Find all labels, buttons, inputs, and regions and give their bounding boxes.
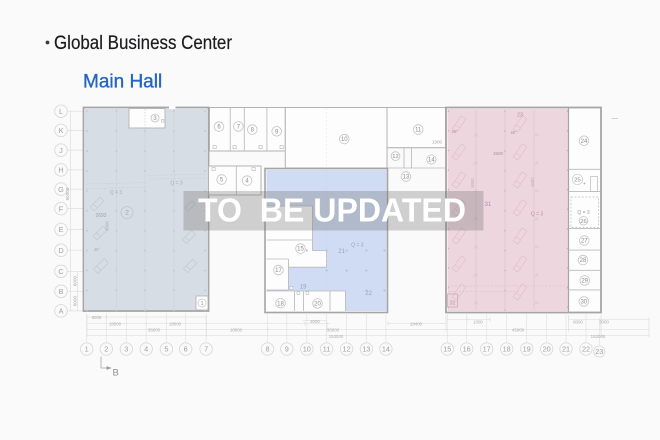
svg-text:L: L (59, 107, 63, 116)
svg-text:6000: 6000 (72, 295, 77, 306)
svg-text:12: 12 (392, 154, 398, 160)
svg-text:10: 10 (341, 137, 348, 143)
svg-text:9: 9 (285, 345, 289, 354)
svg-text:153000: 153000 (329, 334, 344, 339)
svg-text:Main Hall: Main Hall (83, 72, 162, 93)
svg-text:Q = 3: Q = 3 (577, 210, 590, 216)
svg-text:30: 30 (580, 300, 587, 306)
svg-text:1000: 1000 (473, 320, 483, 325)
svg-text:3000: 3000 (599, 320, 609, 325)
svg-text:19: 19 (523, 345, 531, 354)
svg-text:18400: 18400 (410, 322, 423, 327)
svg-text:2693: 2693 (95, 213, 106, 219)
svg-text:F: F (59, 204, 64, 213)
svg-text:15: 15 (297, 247, 304, 253)
svg-text:D: D (58, 246, 63, 255)
svg-text:36000: 36000 (327, 328, 340, 333)
svg-text:45°: 45° (94, 247, 101, 252)
svg-text:8: 8 (265, 345, 269, 354)
svg-text:18: 18 (503, 345, 511, 354)
svg-text:11: 11 (415, 128, 422, 134)
svg-text:C: C (58, 267, 63, 276)
svg-text:21: 21 (338, 249, 345, 255)
svg-text:6000: 6000 (72, 275, 77, 286)
svg-text:2: 2 (125, 210, 129, 217)
svg-text:4: 4 (144, 345, 148, 354)
svg-text:B: B (113, 368, 119, 379)
svg-text:1900: 1900 (493, 151, 504, 156)
svg-text:1: 1 (85, 345, 89, 354)
svg-text:7: 7 (204, 345, 208, 354)
svg-text:6000: 6000 (105, 221, 110, 231)
svg-text:18: 18 (277, 301, 284, 307)
svg-text:6000: 6000 (92, 315, 102, 320)
svg-text:36000: 36000 (148, 328, 161, 333)
svg-text:17: 17 (483, 345, 491, 354)
svg-text:A: A (59, 307, 64, 316)
svg-text:18000: 18000 (169, 322, 182, 327)
svg-text:17: 17 (275, 268, 282, 274)
svg-text:15: 15 (443, 345, 451, 354)
svg-text:2: 2 (104, 345, 108, 354)
svg-text:22: 22 (365, 291, 372, 297)
svg-text:24: 24 (581, 139, 588, 145)
svg-text:6000: 6000 (470, 178, 475, 188)
svg-text:18000: 18000 (230, 328, 243, 333)
svg-text:13: 13 (362, 345, 370, 354)
svg-text:Q = 3: Q = 3 (351, 243, 364, 249)
svg-text:H: H (58, 166, 63, 175)
svg-text:Global Business Center: Global Business Center (54, 33, 233, 54)
svg-text:E: E (59, 225, 64, 234)
svg-text:45000: 45000 (512, 328, 525, 333)
svg-text:32: 32 (450, 301, 456, 307)
svg-text:45°: 45° (510, 130, 517, 135)
svg-text:20: 20 (314, 302, 321, 308)
svg-text:1900: 1900 (432, 140, 443, 145)
svg-text:5: 5 (164, 345, 168, 354)
svg-text:29: 29 (581, 279, 588, 285)
svg-text:14: 14 (428, 158, 435, 164)
svg-text:26: 26 (580, 219, 586, 225)
svg-text:6000: 6000 (530, 177, 535, 187)
svg-text:1: 1 (200, 301, 203, 307)
svg-text:Q = 3: Q = 3 (170, 181, 183, 187)
svg-text:6: 6 (184, 345, 188, 354)
svg-text:45°: 45° (451, 129, 458, 134)
svg-text:21: 21 (562, 345, 570, 354)
svg-text:12: 12 (343, 345, 351, 354)
svg-text:2000: 2000 (310, 319, 320, 324)
svg-text:K: K (59, 126, 64, 135)
svg-text:11: 11 (323, 345, 331, 354)
svg-text:18000: 18000 (109, 322, 122, 327)
svg-text:3: 3 (124, 345, 128, 354)
svg-text:23: 23 (517, 113, 523, 119)
svg-text:28: 28 (580, 258, 587, 264)
svg-text:16: 16 (463, 345, 471, 354)
svg-text:G: G (58, 185, 64, 194)
svg-text:25: 25 (574, 178, 580, 184)
svg-text:27: 27 (581, 239, 588, 245)
svg-text:B: B (59, 287, 64, 296)
svg-text:153000: 153000 (591, 334, 606, 339)
svg-text:60000: 60000 (65, 187, 70, 200)
svg-text:TO BE UPDATED: TO BE UPDATED (198, 192, 466, 229)
svg-text:Q = 3: Q = 3 (531, 212, 544, 218)
svg-text:22: 22 (582, 345, 590, 354)
svg-text:6000: 6000 (573, 320, 583, 325)
svg-text:23: 23 (595, 347, 603, 356)
svg-text:10: 10 (303, 345, 311, 354)
svg-text:J: J (59, 146, 63, 155)
svg-text:Q + 3: Q + 3 (110, 190, 123, 196)
svg-text:20: 20 (543, 345, 551, 354)
svg-text:19: 19 (300, 285, 307, 291)
svg-text:13: 13 (403, 175, 410, 181)
svg-text:31: 31 (485, 202, 492, 208)
svg-text:14: 14 (382, 345, 390, 354)
